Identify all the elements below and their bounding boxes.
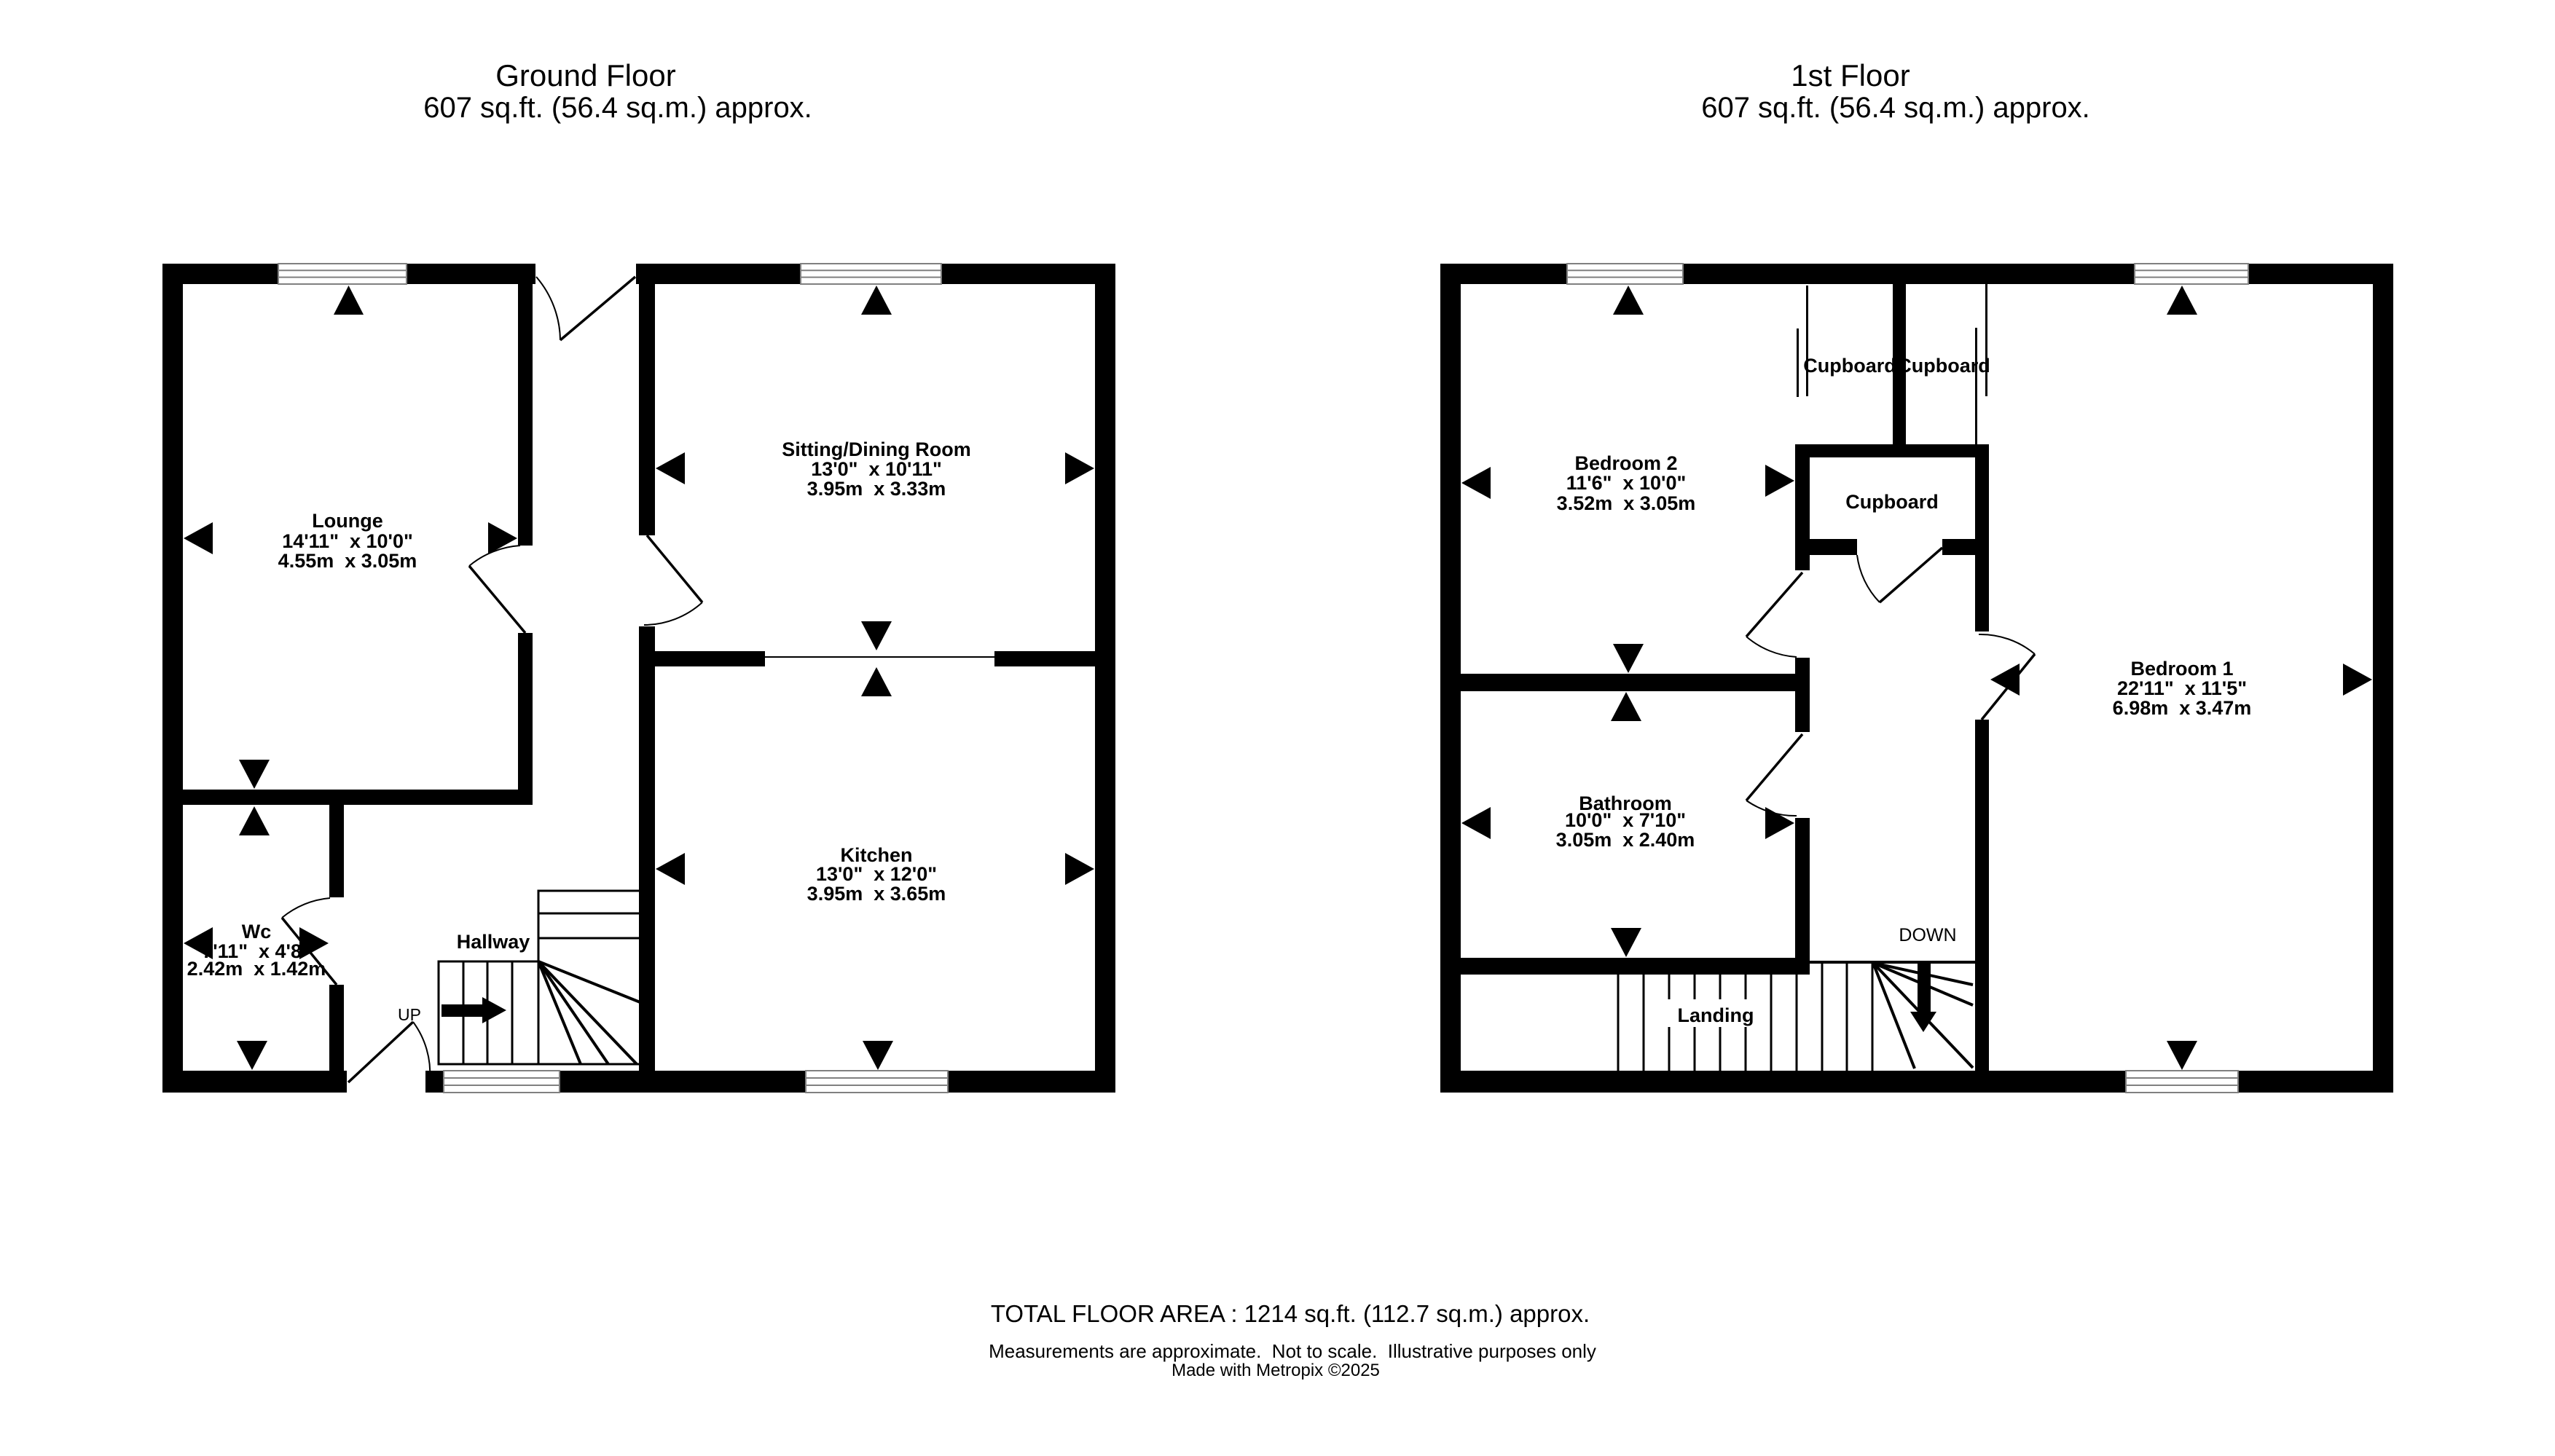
svg-text:Sitting/Dining Room: Sitting/Dining Room <box>782 438 970 460</box>
svg-text:14'11" x 10'0": 14'11" x 10'0" <box>282 530 413 552</box>
svg-text:13'0" x 12'0": 13'0" x 12'0" <box>816 863 937 885</box>
svg-text:Bedroom 1: Bedroom 1 <box>2130 658 2233 680</box>
svg-text:3.05m x 2.40m: 3.05m x 2.40m <box>1556 829 1695 851</box>
svg-text:3.95m x 3.33m: 3.95m x 3.33m <box>807 478 946 500</box>
svg-text:6.98m x 3.47m: 6.98m x 3.47m <box>2113 697 2252 719</box>
svg-text:DOWN: DOWN <box>1899 925 1956 945</box>
svg-text:2.42m x 1.42m: 2.42m x 1.42m <box>187 958 326 980</box>
svg-text:Measurements are approximate.: Measurements are approximate. Not to sca… <box>989 1340 1596 1362</box>
svg-text:TOTAL FLOOR AREA : 1214 sq.ft.: TOTAL FLOOR AREA : 1214 sq.ft. (112.7 sq… <box>991 1300 1590 1327</box>
svg-text:Hallway: Hallway <box>457 931 530 953</box>
svg-text:Cupboard: Cupboard <box>1897 355 1990 377</box>
svg-text:Ground Floor: Ground Floor <box>495 58 675 93</box>
svg-text:3.95m x 3.65m: 3.95m x 3.65m <box>807 883 946 905</box>
svg-text:22'11" x 11'5": 22'11" x 11'5" <box>2117 677 2247 699</box>
svg-text:11'6" x 10'0": 11'6" x 10'0" <box>1566 472 1687 494</box>
svg-text:1st Floor: 1st Floor <box>1791 58 1910 93</box>
svg-text:3.52m x 3.05m: 3.52m x 3.05m <box>1557 492 1696 514</box>
svg-text:4.55m x 3.05m: 4.55m x 3.05m <box>278 550 417 572</box>
svg-text:13'0" x 10'11": 13'0" x 10'11" <box>811 458 942 480</box>
svg-text:UP: UP <box>398 1005 421 1024</box>
svg-text:Wc: Wc <box>242 921 272 943</box>
svg-text:607 sq.ft. (56.4 sq.m.) approx: 607 sq.ft. (56.4 sq.m.) approx. <box>423 92 812 124</box>
svg-text:607 sq.ft. (56.4 sq.m.) approx: 607 sq.ft. (56.4 sq.m.) approx. <box>1701 92 2090 124</box>
svg-text:Cupboard: Cupboard <box>1803 355 1896 377</box>
svg-text:Lounge: Lounge <box>312 510 382 532</box>
svg-text:Landing: Landing <box>1678 1004 1754 1026</box>
svg-text:Made with Metropix ©2025: Made with Metropix ©2025 <box>1171 1361 1380 1380</box>
svg-text:Bedroom 2: Bedroom 2 <box>1574 452 1677 474</box>
svg-text:10'0" x 7'10": 10'0" x 7'10" <box>1565 809 1686 831</box>
svg-text:Cupboard: Cupboard <box>1845 491 1939 513</box>
